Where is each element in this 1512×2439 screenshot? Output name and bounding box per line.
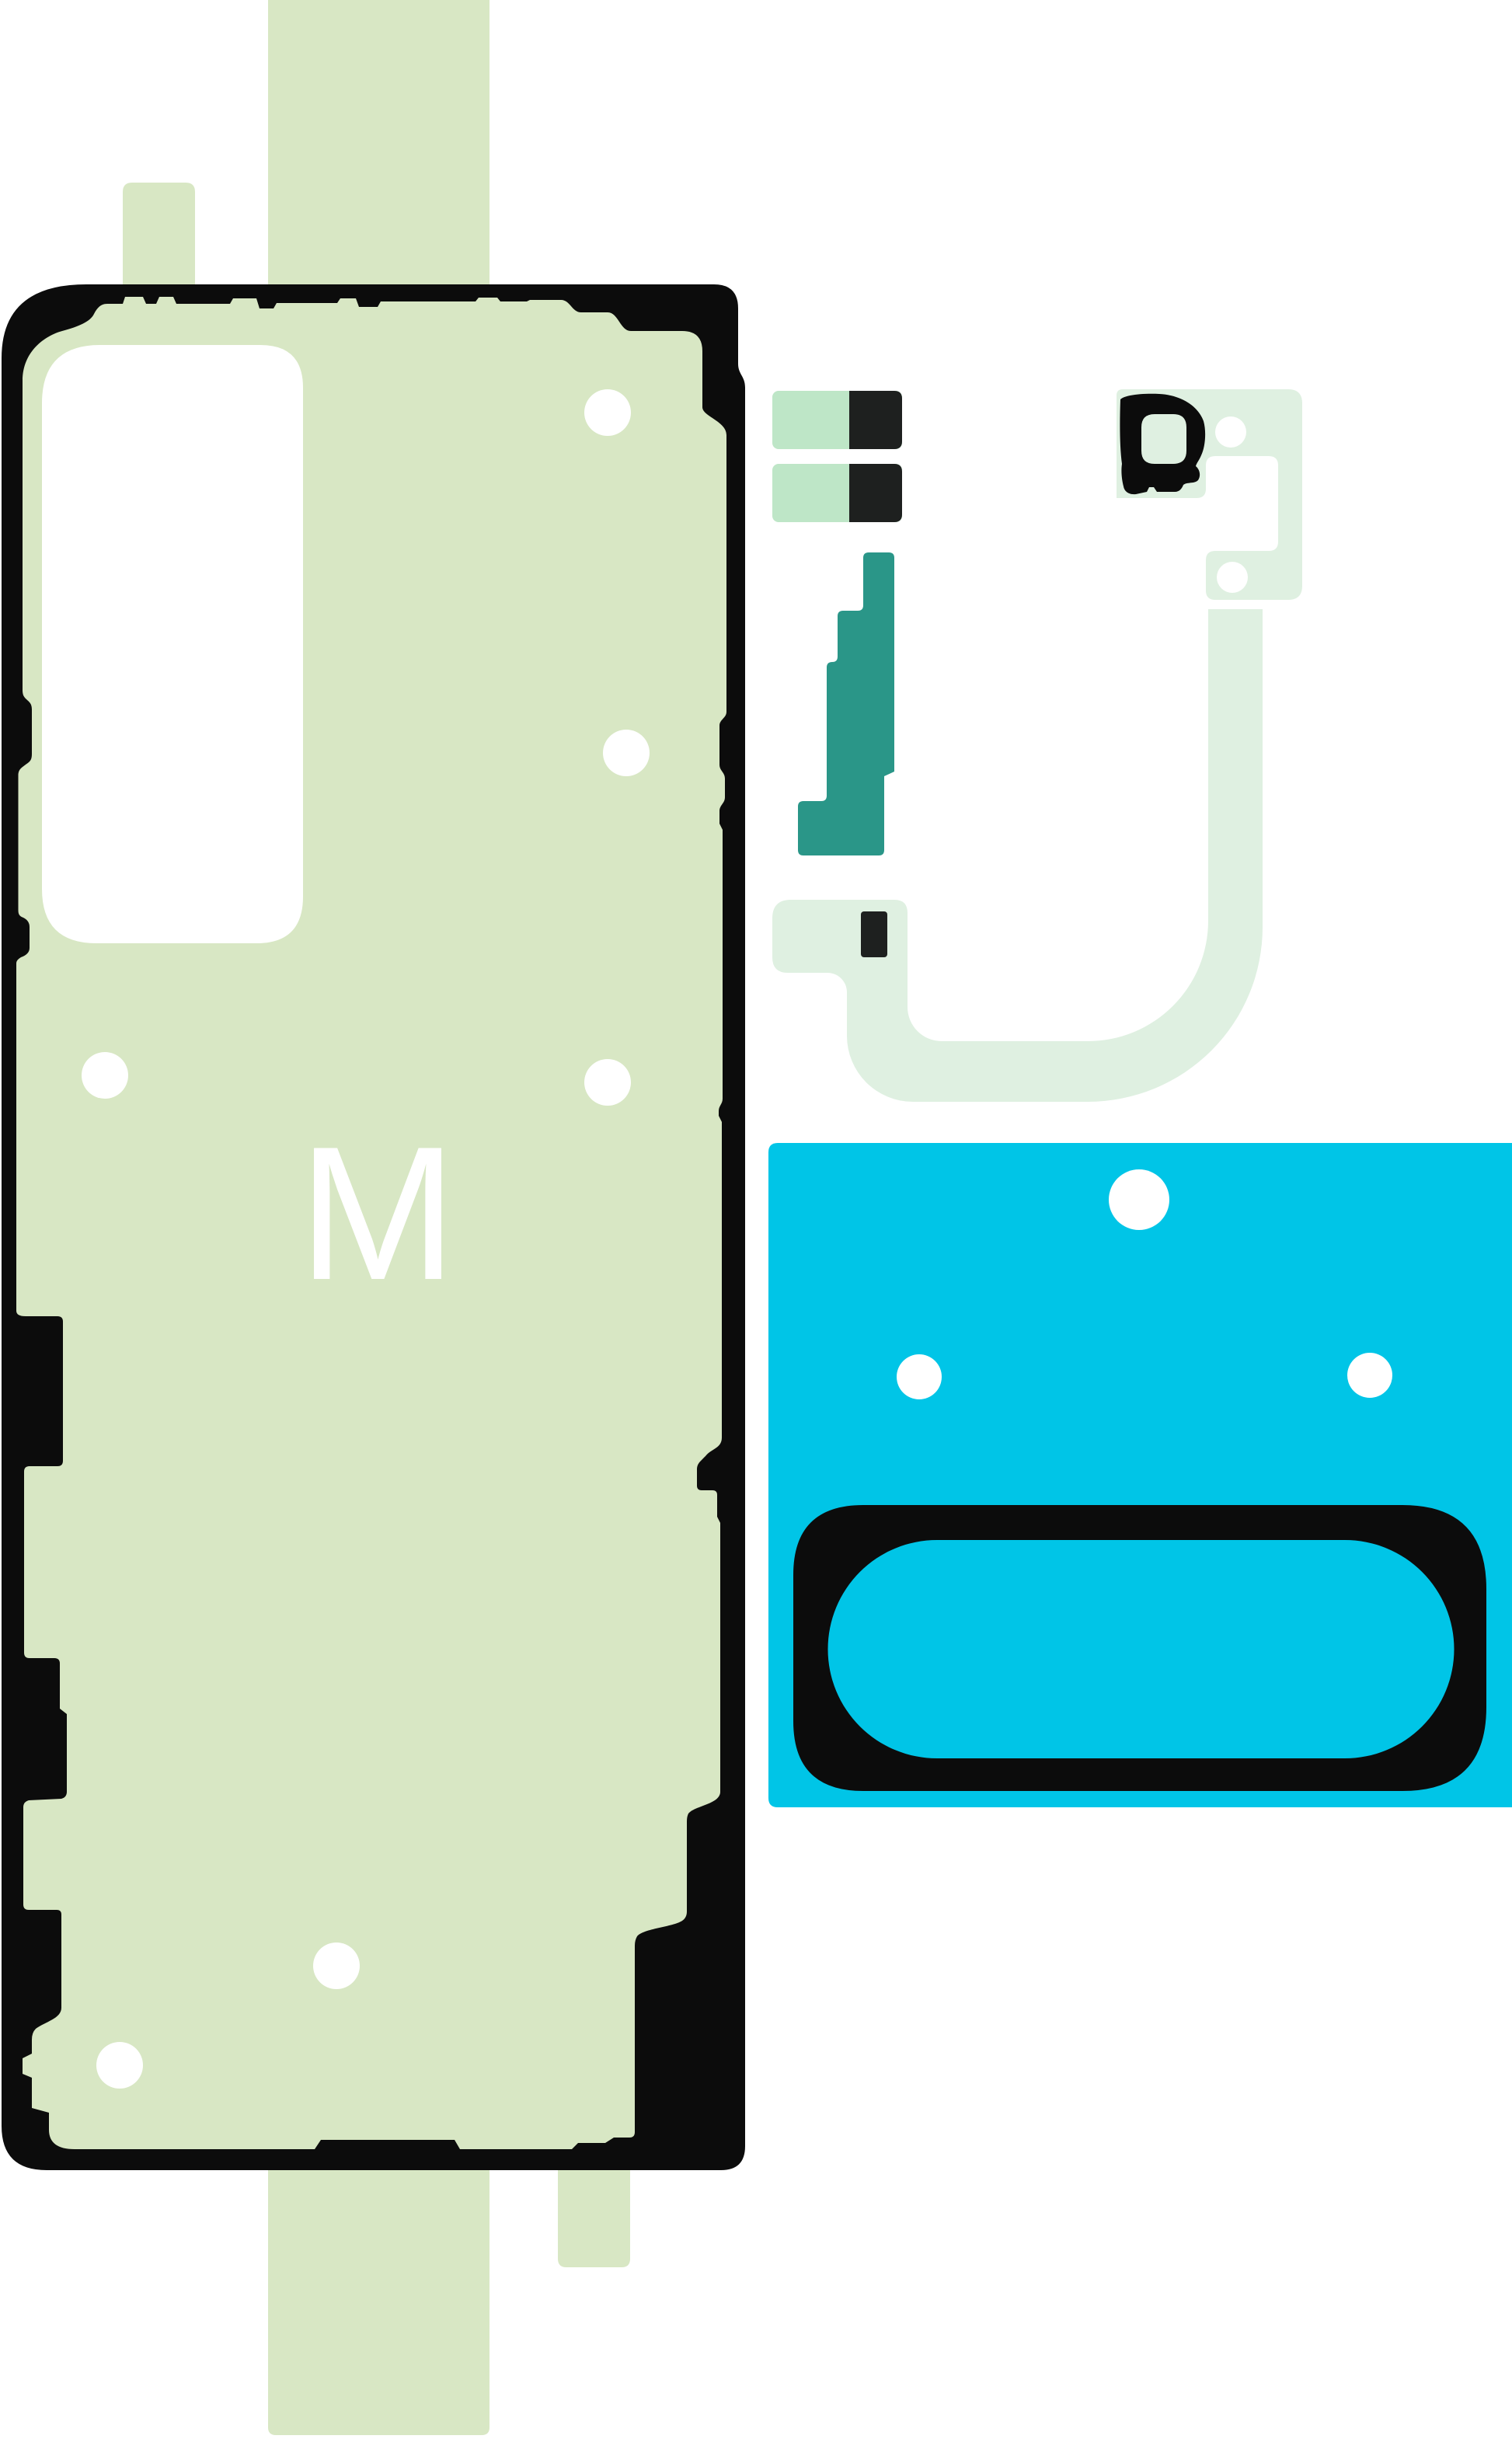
svg-text:M: M [298,1106,457,1319]
